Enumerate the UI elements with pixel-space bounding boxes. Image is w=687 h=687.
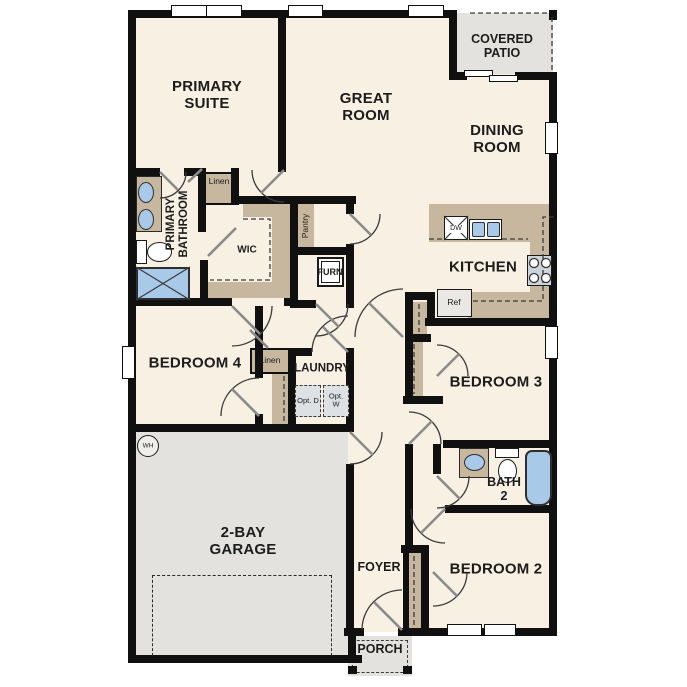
wall [403, 553, 409, 628]
room-label-porch: PORCH [357, 642, 402, 656]
closet-label-pantry: Pantry [301, 214, 311, 239]
label-optional-washer: Opt. W [325, 393, 347, 410]
room-label-covered-patio: COVERED PATIO [466, 32, 538, 60]
label-dishwasher: DW [449, 225, 463, 233]
wic-shelf-top [243, 204, 290, 217]
bedroom2-closet-strip [407, 553, 421, 628]
room-label-dining-room: DINING ROOM [461, 123, 533, 157]
wall [198, 168, 206, 232]
wall [284, 298, 298, 306]
window [206, 5, 242, 17]
wall [398, 628, 412, 636]
wall [425, 318, 557, 326]
room-label-primary-bathroom: PRIMARY BATHROOM [165, 186, 191, 262]
wall [449, 10, 457, 74]
label-furnace: FURN [318, 267, 343, 277]
room-label-bedroom-3: BEDROOM 3 [450, 375, 543, 392]
toilet-tank [136, 240, 147, 264]
wall [348, 636, 356, 656]
window [545, 326, 558, 359]
kitchen-sink-basin [487, 222, 500, 237]
wall [445, 505, 557, 513]
wall [401, 545, 429, 553]
wall [346, 464, 354, 636]
window [545, 122, 558, 154]
bath2-sink [464, 454, 485, 471]
room-label-wic: WIC [237, 244, 256, 255]
wall [255, 306, 263, 378]
bathtub [525, 450, 552, 506]
stove [527, 255, 552, 286]
window [171, 5, 207, 17]
wall [278, 14, 286, 172]
room-label-bedroom-2: BEDROOM 2 [450, 562, 543, 579]
vanity-sink [138, 182, 154, 203]
wall [443, 440, 557, 448]
wall [403, 396, 443, 404]
wall [128, 655, 362, 663]
room-label-bath-2: BATH 2 [483, 475, 525, 503]
window [484, 624, 516, 636]
label-water-heater: WH [143, 442, 154, 449]
wall [128, 424, 354, 432]
wall [290, 204, 298, 308]
wall [346, 196, 354, 214]
wic-shelf-bottom [208, 282, 290, 298]
wall [405, 296, 413, 404]
wall [231, 168, 239, 205]
shower [136, 267, 190, 300]
wall [405, 444, 413, 553]
wall [255, 414, 263, 424]
patio-slider-door [489, 75, 518, 82]
closet-label-linen-bathroom: Linen [209, 177, 230, 187]
wall [128, 10, 136, 663]
wall [290, 247, 352, 255]
window [122, 346, 135, 379]
vanity-sink [138, 209, 154, 230]
window [288, 5, 323, 17]
wall [433, 444, 441, 474]
room-label-foyer: FOYER [357, 560, 400, 574]
wall [405, 334, 431, 342]
room-label-primary-suite: PRIMARY SUITE [157, 79, 257, 113]
room-label-great-room: GREAT ROOM [331, 91, 401, 125]
window [447, 624, 482, 636]
wall [549, 10, 557, 20]
wall [239, 196, 356, 204]
room-label-kitchen: KITCHEN [449, 260, 517, 277]
bath2-toilet-tank [495, 448, 519, 458]
wall [296, 348, 312, 356]
wall [346, 244, 354, 308]
wall [128, 168, 160, 176]
room-label-laundry: LAUNDRY [294, 363, 350, 376]
kitchen-counter-bottom [468, 292, 530, 318]
wall [421, 553, 429, 628]
closet-label-linen-hall: Linen [260, 356, 281, 366]
room-label-bedroom-4: BEDROOM 4 [149, 356, 242, 373]
window [408, 5, 444, 17]
porch-post [348, 666, 357, 674]
label-refrigerator: Ref [447, 298, 460, 308]
label-optional-dryer: Opt. D [297, 397, 319, 405]
room-label-garage: 2-BAY GARAGE [198, 525, 288, 559]
porch-post [403, 666, 412, 674]
kitchen-sink-basin [472, 222, 485, 237]
hall-closet-strip [272, 374, 288, 424]
floor-plan: PRIMARY SUITE GREAT ROOM DINING ROOM COV… [0, 0, 687, 687]
wic-shelf-right [272, 217, 290, 288]
garage-door-dashed [152, 575, 332, 656]
